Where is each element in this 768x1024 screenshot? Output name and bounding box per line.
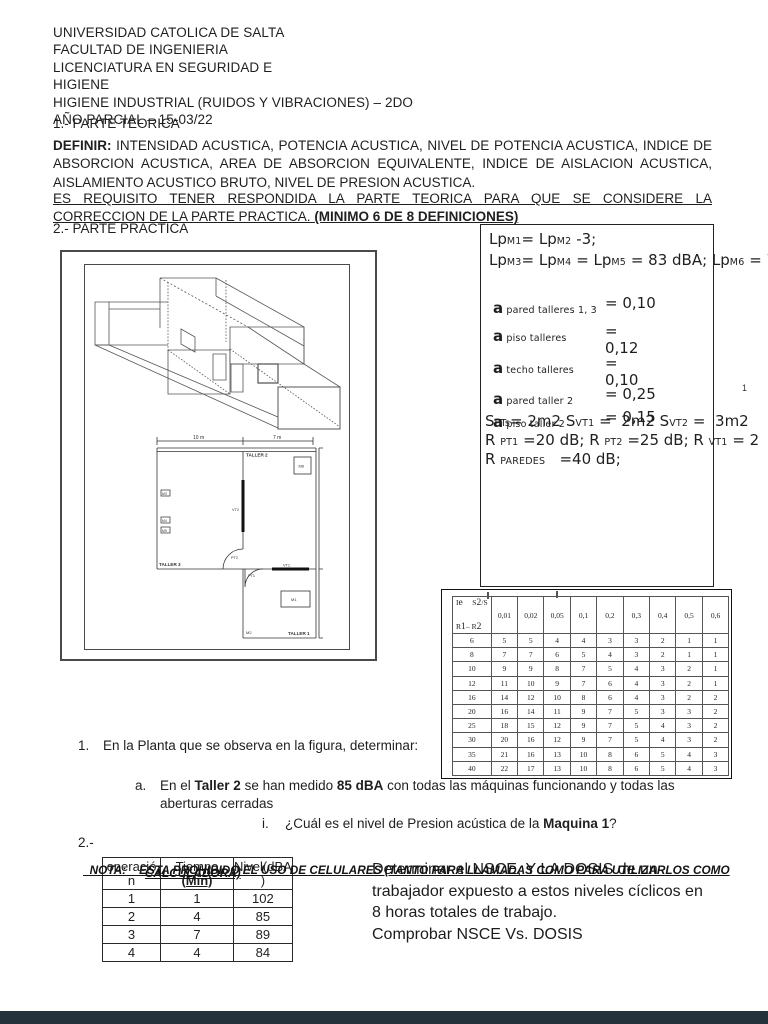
ie-row: 1211109764321 [453,676,729,690]
ie-cell: 4 [676,761,702,775]
question-1a-i-marker: i. [262,815,285,833]
run-text: = 2m2 S [594,412,669,430]
alpha-row: a techo talleres = 0,10 [493,355,709,389]
ie-cell: 4 [676,747,702,761]
ie-cell: 12 [544,719,570,733]
ie-cell: 9 [570,704,596,718]
ie-cell: 2 [702,704,728,718]
dim-label-10m: 10 m [193,435,204,441]
ie-cell: 3 [650,676,676,690]
ie-cell: 3 [650,662,676,676]
header-line: UNIVERSIDAD CATOLICA DE SALTA [53,24,413,41]
ie-cell: 3 [650,690,676,704]
ie-cell: 5 [623,733,649,747]
run-sub: pared talleres 1, 3 [503,305,597,316]
ie-row-header: 8 [453,648,492,662]
run-sub: M6 [730,257,745,268]
ie-row-header: 12 [453,676,492,690]
ie-row-header: 10 [453,662,492,676]
ie-cell: 5 [650,761,676,775]
room-label-taller1: TALLER 1 [288,631,310,636]
ie-cell: 9 [544,676,570,690]
run-bold: Maquina 1 [543,816,609,831]
run-sub: VT1 [575,418,594,429]
run-sub: VT2 [669,418,688,429]
figure-box: 10 m 7 m TALLER 3 TALLER 2 TALLER 1 M6 M… [60,250,377,661]
formula-r-line2: R PAREDES =40 dB; [485,450,621,468]
ie-cell: 14 [518,704,544,718]
ie-cell: 13 [544,747,570,761]
ie-cell: 9 [570,719,596,733]
dosis-cell: 1 [103,890,161,908]
run-sub: techo talleres [503,365,574,376]
ie-cell: 7 [491,648,517,662]
dosis-cell: 1 [161,890,234,908]
definir-paragraph: DEFINIR: INTENSIDAD ACUSTICA, POTENCIA A… [53,137,712,192]
ie-cell: 1 [676,648,702,662]
ie-cell: 8 [597,747,623,761]
run-sub: VT1 [709,437,728,448]
ie-row-header: 40 [453,761,492,775]
ie-col-header: 0,1 [570,597,596,634]
alpha-label: a pared talleres 1, 3 [493,295,605,317]
ie-row: 6554433211 [453,634,729,648]
ie-col-header: 0,5 [676,597,702,634]
formula-lp2: LpM3= LpM4 = LpM5 = 83 dBA; LpM6 = 7 [489,251,768,269]
ie-cell: 2 [650,648,676,662]
ie-cell: 16 [518,747,544,761]
ie-cell: 9 [518,662,544,676]
run-text: = Lp [571,251,611,269]
ie-cell: 10 [570,761,596,775]
alpha-row: a pared taller 2 = 0,25 [493,386,709,408]
ie-cell: 1 [702,676,728,690]
alpha-label: a pared taller 2 [493,386,605,408]
nota-line2: CALCULADORA) [145,866,241,880]
dosis-cell: 4 [161,944,234,962]
dosis-cell: 4 [103,944,161,962]
header-line: LICENCIATURA EN SEGURIDAD E [53,59,413,76]
ie-cell: 8 [570,690,596,704]
ie-cell: 4 [650,719,676,733]
ie-row-header: 25 [453,719,492,733]
run-text: se han medido [241,778,337,793]
ie-cell: 3 [676,704,702,718]
run-text: Lp [489,230,507,248]
ie-corner-bottom: R1– R2 [456,622,488,632]
ie-cell: 2 [676,662,702,676]
dosis-row: 2485 [103,908,293,926]
run-text: = Lp [522,230,557,248]
stray-mark: 1 [742,383,747,393]
opening-label-pt2: PT2 [231,556,238,560]
run-sub: M4 [557,257,572,268]
ie-row: 30201612975432 [453,733,729,747]
run-sub: PT1 [500,437,518,448]
ie-table-body: 6554433211877654321110998754321121110976… [453,634,729,776]
ie-cell: 4 [570,634,596,648]
ie-cell: 15 [518,719,544,733]
ie-row-header: 35 [453,747,492,761]
dosis-table-body: 11102248537894484 [103,890,293,962]
ie-cell: 4 [623,662,649,676]
ie-col-header: 0,6 [702,597,728,634]
ie-row: 16141210864322 [453,690,729,704]
alpha-row: a pared talleres 1, 3 = 0,10 [493,295,709,317]
ie-cell: 8 [597,761,623,775]
question-1a-marker: a. [135,777,160,812]
ie-cell: 2 [676,690,702,704]
question-1a: a. En el Taller 2 se han medido 85 dBA c… [135,777,695,812]
ie-cell: 10 [544,690,570,704]
run-text: =25 dB; R [623,431,709,449]
room-label-taller2: TALLER 2 [246,453,268,458]
run-text: a [493,299,503,317]
ie-row-header: 30 [453,733,492,747]
section1-title: 1.- PARTE TEORICA [53,116,180,131]
ie-row: 352116131086543 [453,747,729,761]
alpha-value: = 0,10 [605,355,705,389]
ie-cell: 5 [570,648,596,662]
requisito-minimo: (MINIMO 6 DE 8 DEFINICIONES) [314,209,518,224]
ie-table-box: Ie S2/S R1– R2 0,010,020,050,10,20,30,40… [441,589,732,779]
isometric-drawing [85,265,349,435]
run-text: =40 dB; [545,450,621,468]
ie-cell: 4 [650,733,676,747]
ie-row: 402217131086543 [453,761,729,775]
machine-label-m2: M2 [246,630,252,635]
ie-cell: 4 [623,690,649,704]
machine-label-m3: M3 [162,492,167,496]
ie-table: Ie S2/S R1– R2 0,010,020,050,10,20,30,40… [452,596,729,776]
alpha-label: a techo talleres [493,355,605,389]
ie-cell: 7 [597,719,623,733]
ie-col-header: 0,01 [491,597,517,634]
ie-row: 10998754321 [453,662,729,676]
run-sub: 2 [477,622,482,632]
ie-col-header: 0,02 [518,597,544,634]
ie-cell: 4 [544,634,570,648]
run-text: =20 dB; R [518,431,604,449]
ie-cell: 6 [597,676,623,690]
ie-cell: 1 [702,634,728,648]
run-text: R [485,431,500,449]
header-line: HIGIENE [53,76,413,93]
alpha-label: a piso talleres [493,323,605,357]
ie-cell: 21 [491,747,517,761]
run-text: -3; [571,230,596,248]
run-text: ? [609,816,617,831]
ie-cell: 2 [676,676,702,690]
ie-cell: 3 [702,761,728,775]
formula-r-line1: R PT1 =20 dB; R PT2 =25 dB; R VT1 = 2 [485,431,759,449]
run-text: Lp [489,251,507,269]
header-line: HIGIENE INDUSTRIAL (RUIDOS Y VIBRACIONES… [53,94,413,111]
task-note-line: 8 horas totales de trabajo. [372,902,703,924]
ie-cell: 2 [702,719,728,733]
formula-box: LpM1= LpM2 -3; LpM3= LpM4 = LpM5 = 83 dB… [480,224,714,587]
formula-lp1: LpM1= LpM2 -3; [489,230,596,248]
run-sub: M2 [557,236,572,247]
run-text: a [493,359,503,377]
ie-row-header: 20 [453,704,492,718]
ie-cell: 3 [623,648,649,662]
ie-cell: 10 [570,747,596,761]
run-text: = 83 dBA; Lp [626,251,730,269]
ie-cell: 9 [491,662,517,676]
ie-cell: 17 [518,761,544,775]
dosis-cell: 4 [161,908,234,926]
run-text: = 3m2 [688,412,749,430]
machine-label-m6: M6 [299,464,305,469]
task-note-line: trabajador expuesto a estos niveles cícl… [372,881,703,903]
ie-cell: 6 [623,747,649,761]
run-bold: 85 dBA [337,778,384,793]
question-2-marker: 2.- [78,835,94,850]
opening-label-vt2: VT2 [232,508,239,512]
room-label-taller3: TALLER 3 [159,562,181,567]
run-text: ¿Cuál es el nivel de Presion acústica de… [285,816,543,831]
opening-label-pt1: PT1 [248,574,255,578]
ie-row: 8776543211 [453,648,729,662]
run-sub: PAREDES [500,456,545,467]
ie-cell: 22 [491,761,517,775]
ie-cell: 3 [650,704,676,718]
ie-cell: 7 [518,648,544,662]
dim-label-7m: 7 m [273,435,281,441]
ie-cell: 3 [597,634,623,648]
ie-cell: 4 [623,676,649,690]
ie-cell: 3 [623,634,649,648]
ie-row-header: 16 [453,690,492,704]
ie-cell: 5 [491,634,517,648]
run-text: = Lp [522,251,557,269]
run-text: – R [466,622,477,631]
header-line: FACULTAD DE INGENIERIA [53,41,413,58]
dosis-cell: 3 [103,926,161,944]
alpha-value: = 0,25 [605,386,705,408]
alpha-value: = 0,10 [605,295,705,317]
ie-col-header: 0,3 [623,597,649,634]
task-note-line: Comprobar NSCE Vs. DOSIS [372,924,703,946]
machine-label-m1: M1 [291,597,297,602]
ie-cell: 14 [491,690,517,704]
ie-cell: 20 [491,733,517,747]
alpha-row: a piso talleres = 0,12 [493,323,709,357]
document-header: UNIVERSIDAD CATOLICA DE SALTA FACULTAD D… [53,24,413,128]
ie-cell: 1 [676,634,702,648]
dosis-cell: 89 [234,926,293,944]
run-sub: M3 [507,257,522,268]
floor-plan: 10 m 7 m TALLER 3 TALLER 2 TALLER 1 M6 M… [85,435,349,648]
ie-cell: 5 [518,634,544,648]
question-1a-i: i. ¿Cuál es el nivel de Presion acústica… [262,815,617,833]
ie-corner-cell: Ie S2/S R1– R2 [453,597,492,634]
ie-col-header: 0,05 [544,597,570,634]
ie-cell: 7 [597,733,623,747]
run-text: S [485,412,495,430]
figure-inner-frame: 10 m 7 m TALLER 3 TALLER 2 TALLER 1 M6 M… [84,264,350,650]
ie-cell: 16 [518,733,544,747]
ie-cell: 13 [544,761,570,775]
ie-row: 20161411975332 [453,704,729,718]
run-sub: M1 [507,236,522,247]
run-text: = 2 [728,431,760,449]
run-sub: PTs [495,418,511,429]
run-text: R [485,450,500,468]
run-text: /S [481,598,487,607]
dosis-cell: 7 [161,926,234,944]
machine-label-m4: M4 [162,519,167,523]
machine-label-m5: M5 [162,529,167,533]
ie-cell: 6 [544,648,570,662]
run-sub: piso talleres [503,333,566,344]
dosis-row: 11102 [103,890,293,908]
alpha-value: = 0,12 [605,323,705,357]
ie-cell: 5 [623,704,649,718]
formula-surfaces: SPTs= 2m2 SVT1 = 2m2 SVT2 = 3m2 [485,412,749,430]
dosis-cell: 84 [234,944,293,962]
run-sub: M5 [611,257,626,268]
run-text: a [493,390,503,408]
question-1a-i-text: ¿Cuál es el nivel de Presion acústica de… [285,815,617,833]
run-sub: pared taller 2 [503,396,573,407]
run-text: a [493,327,503,345]
ie-corner-top: Ie S2/S [456,598,488,608]
ie-cell: 8 [544,662,570,676]
definir-label: DEFINIR: [53,138,112,153]
run-text: S [463,598,477,607]
ie-cell: 9 [570,733,596,747]
nota-label: NOTA: [90,863,126,877]
ie-col-header: 0,2 [597,597,623,634]
question-1a-text: En el Taller 2 se han medido 85 dBA con … [160,777,694,812]
ie-cell: 3 [676,733,702,747]
ie-row-header: 6 [453,634,492,648]
ie-header-row: Ie S2/S R1– R2 0,010,020,050,10,20,30,40… [453,597,729,634]
ie-cell: 1 [702,648,728,662]
ie-cell: 2 [650,634,676,648]
ie-cell: 11 [544,704,570,718]
question-1-text: En la Planta que se observa en la figura… [103,737,418,755]
dosis-cell: 2 [103,908,161,926]
run-sub: PT2 [604,437,622,448]
definir-body: INTENSIDAD ACUSTICA, POTENCIA ACUSTICA, … [53,138,712,190]
ie-cell: 5 [623,719,649,733]
ie-cell: 2 [702,733,728,747]
ie-cell: 4 [597,648,623,662]
ie-cell: 2 [702,690,728,704]
ie-cell: 7 [597,704,623,718]
opening-label-vt1: VT1 [283,564,290,568]
ie-cell: 5 [650,747,676,761]
ie-cell: 10 [518,676,544,690]
dosis-row: 3789 [103,926,293,944]
ie-cell: 7 [570,676,596,690]
ie-cell: 11 [491,676,517,690]
dosis-cell: 102 [234,890,293,908]
dosis-cell: 85 [234,908,293,926]
run-text: En el [160,778,195,793]
ie-cell: 16 [491,704,517,718]
run-text: = 7 [744,251,768,269]
ie-cell: 7 [570,662,596,676]
ie-cell: 3 [702,747,728,761]
question-1: 1. En la Planta que se observa en la fig… [78,737,418,755]
ie-cell: 6 [623,761,649,775]
ie-cell: 6 [597,690,623,704]
question-1-marker: 1. [78,737,103,755]
run-text: = 2m2 S [510,412,575,430]
dosis-row: 4484 [103,944,293,962]
ie-cell: 3 [676,719,702,733]
ie-col-header: 0,4 [650,597,676,634]
ie-row: 25181512975432 [453,719,729,733]
section2-title: 2.- PARTE PRACTICA [53,221,188,236]
ie-cell: 18 [491,719,517,733]
ie-cell: 5 [597,662,623,676]
ie-cell: 12 [544,733,570,747]
viewer-bottom-bar [0,1011,768,1024]
ie-cell: 1 [702,662,728,676]
run-bold: Taller 2 [195,778,241,793]
ie-cell: 12 [518,690,544,704]
